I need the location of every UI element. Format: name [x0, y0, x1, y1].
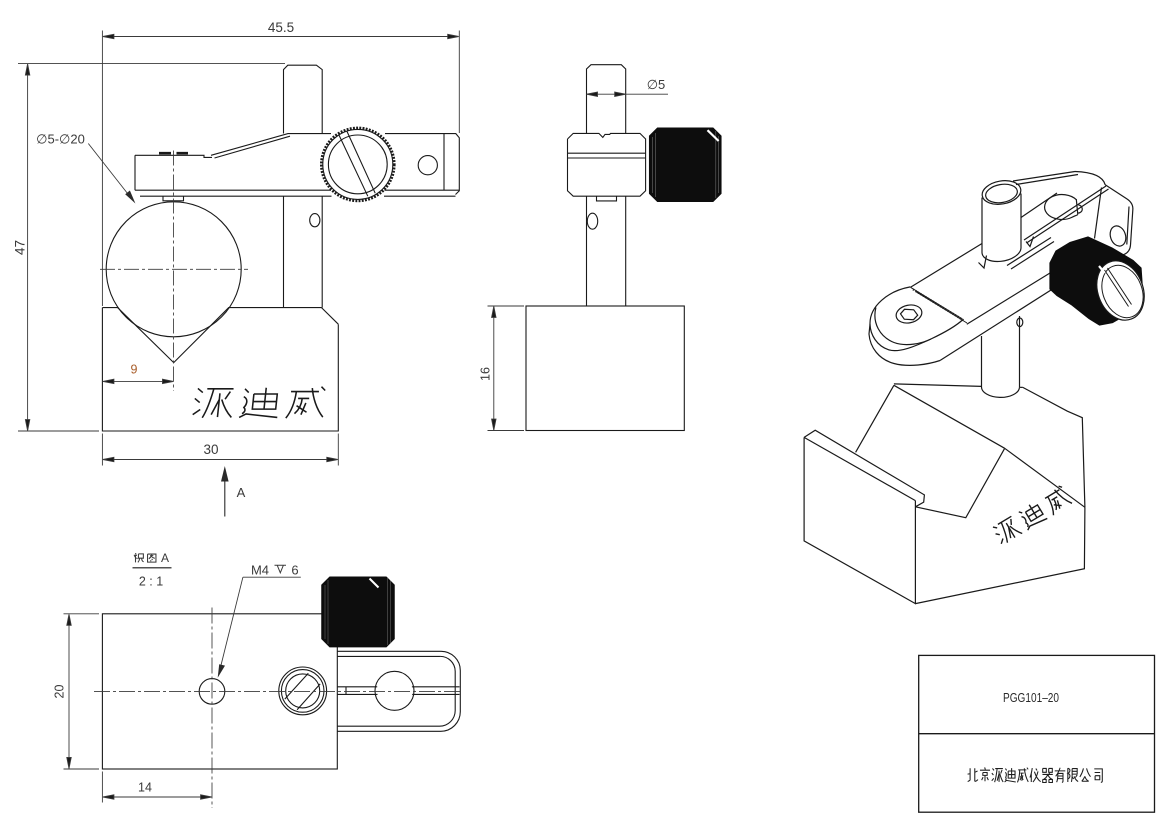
- svg-text:16: 16: [479, 367, 493, 381]
- svg-text:30: 30: [203, 442, 218, 457]
- svg-text:∅5: ∅5: [647, 77, 666, 92]
- svg-text:A: A: [237, 485, 246, 500]
- svg-text:M4: M4: [251, 563, 269, 578]
- svg-text:45.5: 45.5: [268, 20, 294, 35]
- svg-text:14: 14: [138, 781, 152, 795]
- svg-text:9: 9: [131, 363, 138, 377]
- svg-text:6: 6: [291, 563, 298, 578]
- svg-text:2 : 1: 2 : 1: [139, 575, 163, 589]
- svg-text:47: 47: [13, 240, 28, 255]
- svg-text:20: 20: [53, 685, 67, 699]
- svg-text:A: A: [161, 551, 169, 565]
- svg-text:PGG101–20: PGG101–20: [1003, 690, 1059, 705]
- svg-text:∅5-∅20: ∅5-∅20: [36, 132, 85, 147]
